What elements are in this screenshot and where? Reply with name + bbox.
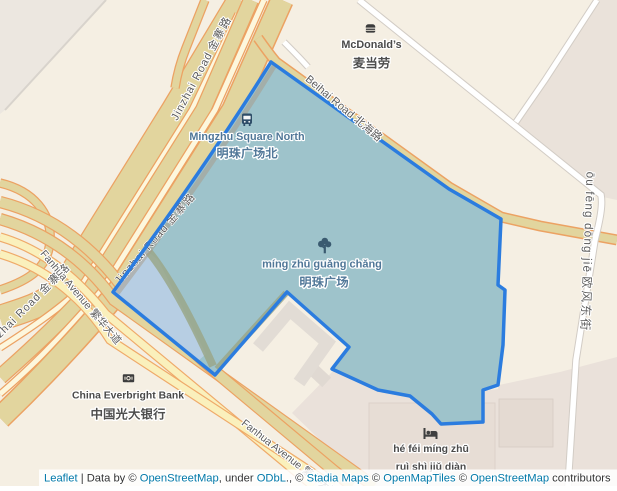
svg-text:McDonald’s: McDonald’s: [341, 39, 401, 51]
svg-text:míng zhū guǎng chǎng: míng zhū guǎng chǎng: [262, 259, 382, 271]
svg-text:Mingzhu Square North: Mingzhu Square North: [189, 131, 304, 143]
svg-text:China Everbright Bank: China Everbright Bank: [72, 391, 184, 402]
svg-text:Leaflet | Data by © OpenStreet: Leaflet | Data by © OpenStreetMap, under…: [44, 473, 611, 485]
svg-text:hé féi míng zhū: hé féi míng zhū: [393, 444, 469, 455]
